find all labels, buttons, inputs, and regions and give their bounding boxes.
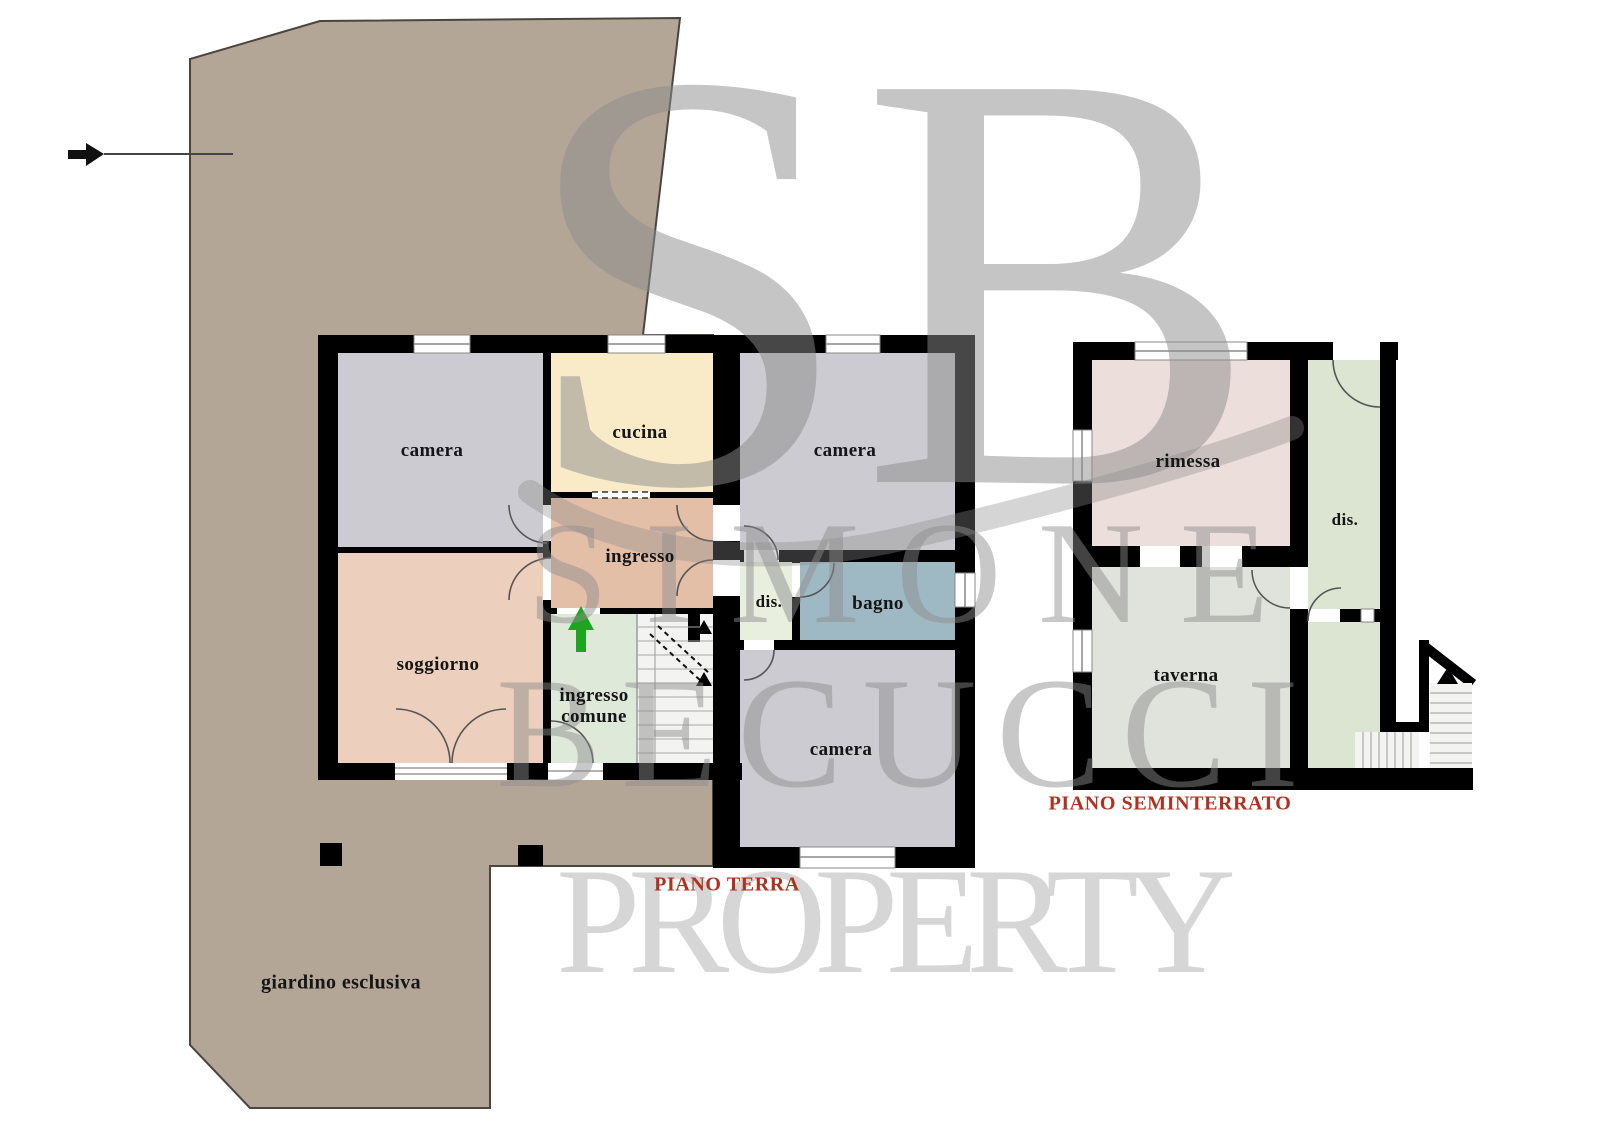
room-bagno [800,562,955,640]
garden-pillar-left [320,843,342,866]
room-camera-s [740,650,955,847]
room-ingresso [551,498,713,608]
room-camera-nw [338,353,543,547]
room-dis-gf [740,562,792,640]
room-taverna [1092,567,1290,768]
room-camera-ne [740,353,955,550]
floor-plan-canvas: SB SIMONE BECUCCI PROPERTY camera cucina… [0,0,1600,1131]
stairwell-gf [637,614,713,763]
room-rimessa [1092,360,1290,546]
floor-plan-drawing [0,0,1600,1131]
room-cucina [551,353,713,492]
room-dis-basement [1308,360,1380,609]
cucina-passage-dashed [592,492,650,498]
room-ingresso-comune [551,614,637,763]
garden-pillar-right [518,845,543,866]
